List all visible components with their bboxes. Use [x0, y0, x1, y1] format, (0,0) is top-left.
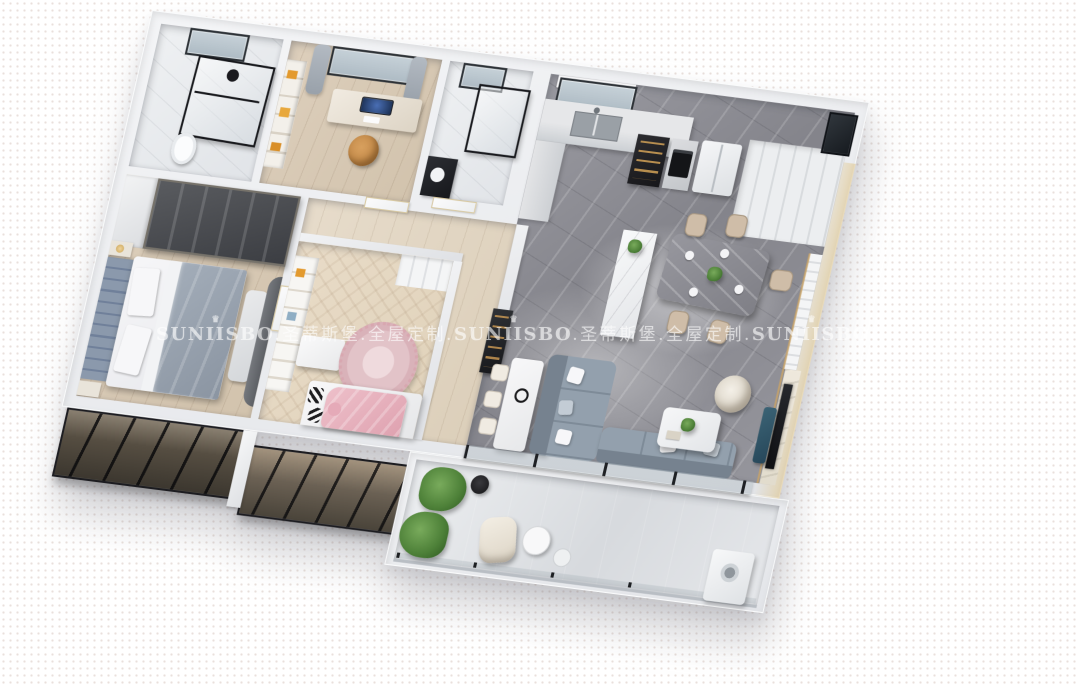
kids-books-icon — [295, 268, 306, 277]
kids-wardrobe — [395, 254, 454, 292]
render-canvas: SUN♛IISBO.圣蒂斯堡.全屋定制.SUN♛IISBO.圣蒂斯堡.全屋定制.… — [0, 0, 1080, 687]
watermark-chinese-text: .圣蒂斯堡.全屋定制. — [274, 325, 454, 345]
balcony-lounge-chair — [478, 516, 517, 564]
orange-books-icon — [279, 107, 291, 118]
watermark-brand-ii: ♛II — [206, 324, 226, 345]
watermark-chinese-text: .圣蒂斯堡.全屋定制. — [572, 325, 752, 345]
watermark-brand-ii: ♛II — [504, 324, 524, 345]
nightstand — [76, 380, 101, 397]
orange-books-icon — [286, 70, 298, 80]
sofa-pillow — [558, 400, 574, 415]
watermark-brand: SUN♛IISBO — [156, 324, 274, 345]
crown-icon: ♛ — [807, 315, 815, 325]
orange-books-icon — [270, 142, 282, 152]
bay-window-kids — [237, 445, 409, 535]
apartment-plan — [62, 10, 870, 499]
coffee-table-books-icon — [666, 430, 682, 440]
watermark-brand-ii: ♛II — [802, 324, 822, 345]
watermark-row: SUN♛IISBO.圣蒂斯堡.全屋定制.SUN♛IISBO.圣蒂斯堡.全屋定制.… — [156, 320, 870, 345]
crown-icon: ♛ — [212, 315, 220, 325]
crown-icon: ♛ — [509, 315, 517, 325]
watermark-brand: SUN♛IISBO — [752, 324, 870, 345]
watermark-brand: SUN♛IISBO — [454, 324, 572, 345]
